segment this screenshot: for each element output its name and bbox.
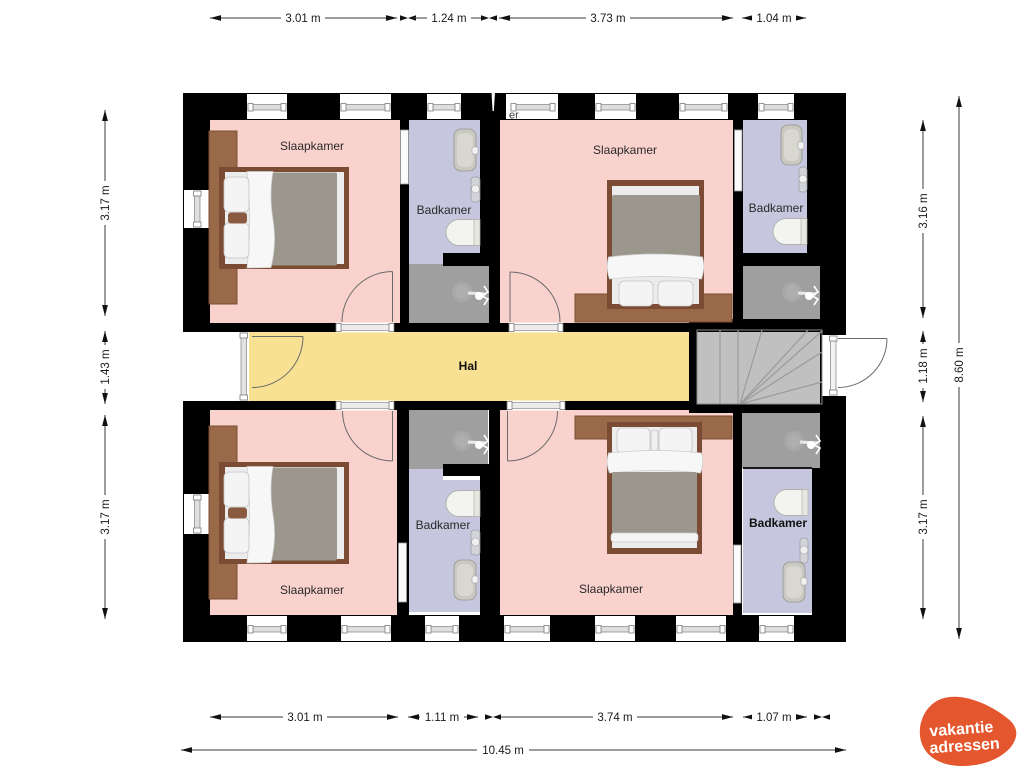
svg-text:1.07 m: 1.07 m xyxy=(756,712,791,724)
svg-text:3.17 m: 3.17 m xyxy=(100,499,112,534)
svg-text:Slaapkamer: Slaapkamer xyxy=(579,582,643,596)
svg-text:er: er xyxy=(509,110,519,122)
svg-text:3.01 m: 3.01 m xyxy=(285,13,320,25)
svg-text:Badkamer: Badkamer xyxy=(749,201,804,215)
svg-text:Slaapkamer: Slaapkamer xyxy=(280,583,344,597)
svg-text:1.24 m: 1.24 m xyxy=(431,13,466,25)
svg-text:Badkamer: Badkamer xyxy=(417,203,472,217)
svg-text:Slaapkamer: Slaapkamer xyxy=(593,143,657,157)
svg-text:3.17 m: 3.17 m xyxy=(918,499,930,534)
svg-text:1.43 m: 1.43 m xyxy=(100,349,112,384)
svg-text:Badkamer: Badkamer xyxy=(749,516,807,530)
svg-text:10.45 m: 10.45 m xyxy=(482,745,524,757)
svg-text:1.11 m: 1.11 m xyxy=(425,712,459,724)
svg-text:Slaapkamer: Slaapkamer xyxy=(280,139,344,153)
svg-text:3.16 m: 3.16 m xyxy=(918,193,930,228)
svg-text:3.73 m: 3.73 m xyxy=(590,13,625,25)
svg-text:1.04 m: 1.04 m xyxy=(756,13,791,25)
svg-text:8.60 m: 8.60 m xyxy=(954,347,966,382)
svg-text:3.01 m: 3.01 m xyxy=(287,712,322,724)
svg-text:Hal: Hal xyxy=(459,359,478,373)
svg-text:Badkamer: Badkamer xyxy=(416,518,471,532)
svg-text:1.18 m: 1.18 m xyxy=(918,348,930,383)
svg-text:3.74 m: 3.74 m xyxy=(597,712,632,724)
svg-text:3.17 m: 3.17 m xyxy=(100,185,112,220)
